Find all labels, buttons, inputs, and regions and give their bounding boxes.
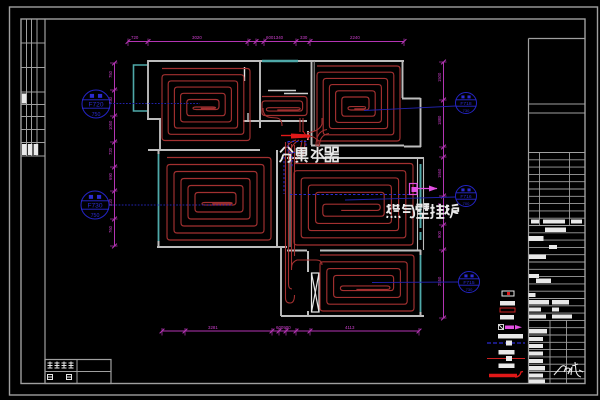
svg-text:900: 900 — [437, 230, 442, 238]
svg-text:700: 700 — [463, 201, 470, 206]
svg-text:F718: F718 — [460, 101, 471, 107]
svg-text:F730: F730 — [87, 202, 102, 209]
svg-text:750: 750 — [108, 70, 113, 78]
svg-text:760: 760 — [108, 225, 113, 233]
svg-text:2240: 2240 — [350, 35, 360, 40]
svg-text:330: 330 — [300, 35, 308, 40]
svg-text:750: 750 — [92, 112, 101, 118]
svg-text:3281: 3281 — [208, 325, 218, 330]
svg-text:690: 690 — [108, 172, 113, 180]
svg-text:730: 730 — [463, 108, 470, 113]
svg-text:720: 720 — [108, 147, 113, 155]
svg-text:F715: F715 — [463, 280, 474, 286]
svg-text:730: 730 — [466, 287, 473, 292]
svg-text:1560: 1560 — [437, 168, 442, 178]
svg-text:720: 720 — [131, 35, 139, 40]
svg-text:1880: 1880 — [437, 115, 442, 125]
svg-text:6001340: 6001340 — [266, 35, 284, 40]
svg-text:2550: 2550 — [437, 276, 442, 286]
svg-text:F720: F720 — [88, 101, 103, 108]
svg-text:1050: 1050 — [108, 120, 113, 130]
svg-text:4113: 4113 — [345, 325, 355, 330]
svg-text:F716: F716 — [460, 194, 471, 200]
svg-text:600900: 600900 — [276, 325, 291, 330]
svg-text:1500: 1500 — [437, 72, 442, 82]
svg-text:3020: 3020 — [192, 35, 202, 40]
svg-text:750: 750 — [91, 213, 100, 219]
